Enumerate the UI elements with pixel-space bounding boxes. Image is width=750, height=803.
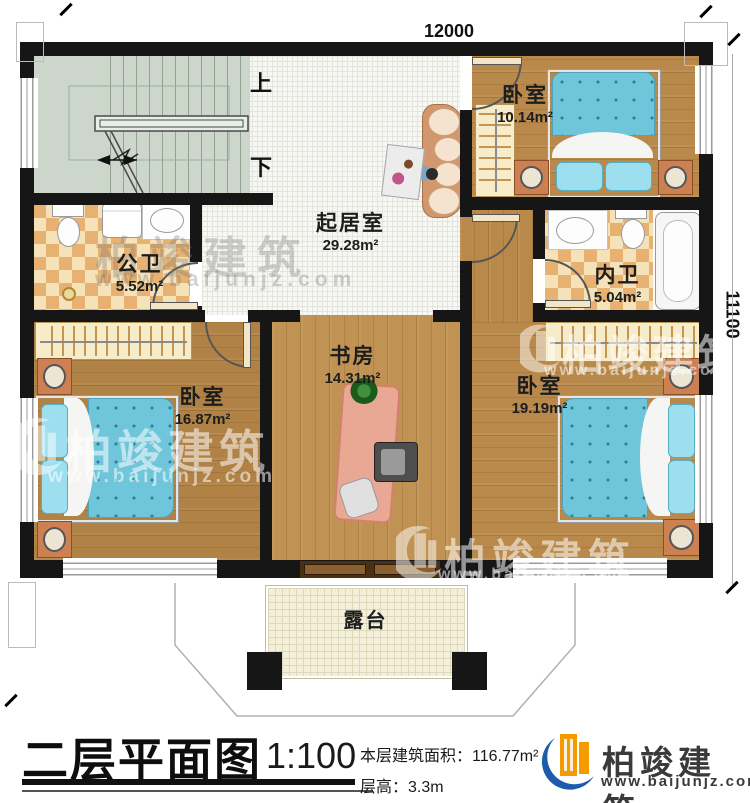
floor-plan-page: 柏竣建筑 www.baijunjz.com 柏竣建筑 www.baijunjz.…	[0, 0, 750, 803]
toilet-tank	[52, 203, 84, 217]
sofa-cushion	[428, 187, 460, 215]
bed-right-sheet	[640, 398, 670, 516]
person-head	[426, 168, 438, 180]
title-underline-thin	[22, 790, 372, 792]
dimension-top: 12000	[424, 21, 474, 42]
bed-right-pillow	[668, 460, 695, 514]
tick-mark	[4, 694, 17, 707]
bed-top-pillow	[556, 162, 603, 191]
sink-basin	[556, 217, 594, 244]
table-decor	[403, 159, 413, 169]
reference-box-top-left	[16, 22, 44, 62]
room-label-terrace: 露台	[318, 610, 413, 634]
toilet-bowl	[621, 219, 645, 249]
door-leaf-corridor	[472, 214, 520, 222]
wardrobe-bedroom-left	[35, 322, 192, 360]
floor-height-value: 3.3m	[408, 779, 444, 796]
coffee-table	[381, 144, 425, 200]
wall-stair-bath	[33, 193, 273, 205]
scale-value: 1:100	[266, 735, 356, 777]
nightstand	[37, 358, 72, 395]
dimension-line-right	[732, 54, 733, 588]
monitor-screen	[381, 449, 405, 475]
nightstand	[663, 519, 700, 556]
stair-down-label: 下	[250, 150, 272, 182]
wardrobe-rail	[40, 341, 187, 343]
wall-mid-left	[20, 310, 205, 322]
terrace-pillar-right	[452, 652, 487, 690]
door-leaf-bedroom-top	[472, 57, 522, 65]
floor-height-info: 层高：3.3m	[360, 773, 444, 797]
sofa-cushion	[434, 162, 462, 187]
wall-living-right	[460, 261, 472, 570]
sofa-cushion	[428, 108, 460, 136]
watermark-url: www.baijunjz.com	[438, 566, 624, 584]
bed-top-pillow	[605, 162, 652, 191]
window-bedroom-left-south	[63, 558, 217, 580]
watermark-url: www.baijunjz.com	[48, 466, 276, 488]
floor-drain	[62, 287, 76, 301]
stair-graphics	[33, 56, 250, 193]
reference-box-bottom-left	[8, 582, 36, 648]
stairwell	[33, 56, 250, 193]
room-label-public-bath: 公卫 5.52m²	[92, 253, 187, 295]
floor-area-value: 116.77m²	[472, 748, 538, 765]
company-logo-icon	[538, 730, 596, 792]
stair-up-label: 上	[250, 66, 272, 98]
company-logo-text: 柏竣建筑	[602, 736, 750, 803]
room-label-inner-bath: 内卫 5.04m²	[570, 264, 665, 306]
bathtub-basin	[663, 220, 693, 302]
wall-innerbath-bottom	[533, 310, 713, 322]
floor-area-label: 本层建筑面积：	[360, 748, 472, 765]
window-bedroom-right	[695, 395, 717, 523]
company-logo-url: www.baijunjz.com	[601, 773, 750, 790]
window-bedroom-top	[695, 66, 717, 154]
table-decor	[391, 172, 404, 185]
wall-bedtop-bottom	[460, 197, 713, 210]
room-label-study: 书房 14.31m²	[305, 345, 400, 387]
nightstand	[658, 160, 693, 195]
nightstand	[37, 521, 72, 558]
title-underline-thick	[22, 779, 355, 785]
door-leaf-bedroom-left	[243, 322, 251, 368]
nightstand	[514, 160, 549, 195]
wall-mid-center	[248, 310, 300, 322]
reference-box-top-right	[684, 22, 728, 66]
floor-height-label: 层高：	[360, 779, 408, 796]
room-label-living: 起居室 29.28m²	[298, 212, 403, 254]
toilet-bowl	[57, 217, 80, 247]
tick-mark	[727, 33, 740, 46]
floor-area-info: 本层建筑面积：116.77m²	[360, 742, 538, 766]
tick-mark	[59, 3, 72, 16]
bed-right-pillow	[668, 404, 695, 458]
room-label-bedroom-top: 卧室 10.14m²	[470, 84, 580, 126]
wall-innerbath-left	[533, 210, 545, 259]
tick-mark	[699, 5, 712, 18]
computer-monitor	[374, 442, 418, 482]
room-label-bedroom-left: 卧室 16.87m²	[155, 386, 250, 428]
wall-top	[20, 42, 713, 56]
terrace-pillar-left	[247, 652, 282, 690]
sofa-cushion	[434, 137, 462, 162]
window-stairs	[16, 78, 38, 168]
door-leaf-public-bath	[150, 302, 198, 310]
watermark-logo-icon	[396, 524, 442, 584]
room-label-bedroom-right: 卧室 19.19m²	[492, 375, 587, 417]
